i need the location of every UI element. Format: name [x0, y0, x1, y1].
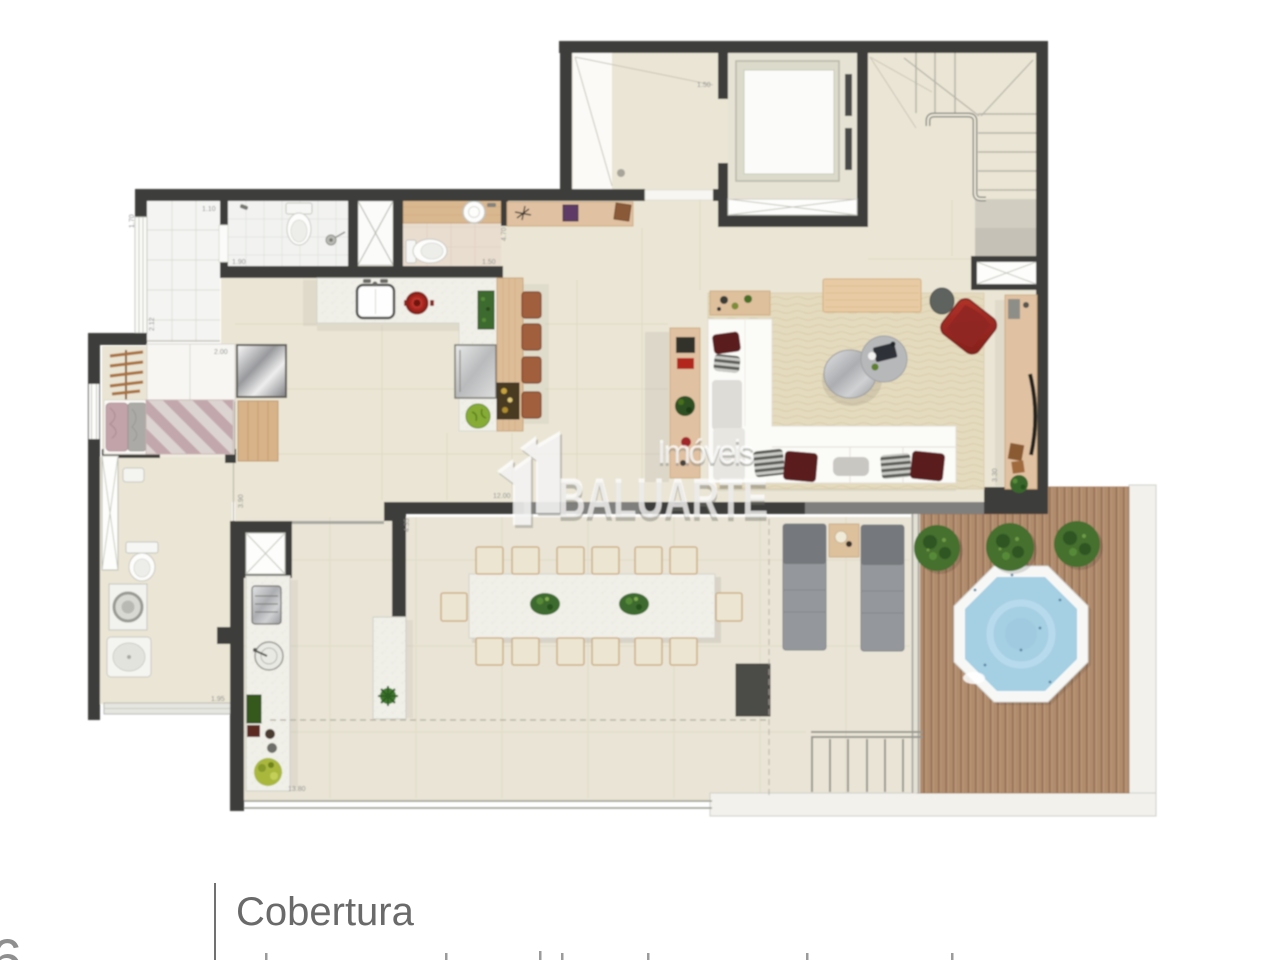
- svg-text:1.90: 1.90: [232, 259, 246, 266]
- svg-text:Cobertura: Cobertura: [236, 890, 415, 934]
- svg-text:1.95: 1.95: [211, 696, 225, 703]
- svg-text:1.70: 1.70: [129, 214, 136, 228]
- svg-text:1.10: 1.10: [202, 206, 216, 213]
- svg-text:2.12: 2.12: [149, 317, 156, 331]
- svg-text:4.70: 4.70: [501, 227, 508, 241]
- svg-text:2.00: 2.00: [214, 349, 228, 356]
- svg-text:1.50: 1.50: [482, 259, 496, 266]
- svg-text:3.30: 3.30: [992, 468, 999, 482]
- svg-text:12.00: 12.00: [493, 493, 511, 500]
- svg-text:BALUARTE: BALUARTE: [558, 466, 768, 529]
- svg-text:13.80: 13.80: [288, 786, 306, 793]
- svg-text:3.90: 3.90: [238, 494, 245, 508]
- svg-text:6: 6: [0, 928, 22, 960]
- svg-text:Imóveis: Imóveis: [657, 433, 755, 470]
- svg-text:1.50: 1.50: [697, 82, 711, 89]
- svg-text:4.35: 4.35: [404, 518, 411, 532]
